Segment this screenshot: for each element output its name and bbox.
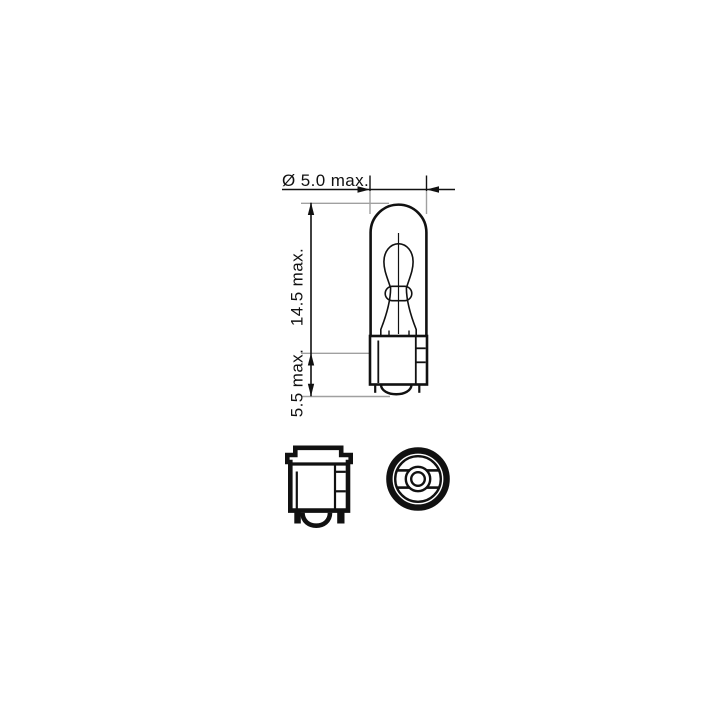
base-length-arrow-bottom xyxy=(308,384,314,397)
top-view-inner-circle xyxy=(395,456,441,502)
length-dimensions xyxy=(301,203,390,397)
diameter-arrow-right xyxy=(427,186,440,192)
top-view-nub-circle xyxy=(411,472,425,486)
base-side-contact-tab-right xyxy=(337,513,344,524)
diameter-dimension-label: Ø 5.0 max. xyxy=(282,172,369,189)
base-side-contact-tab-left xyxy=(294,513,301,524)
base-side-view xyxy=(287,448,350,526)
bulb-dimension-diagram xyxy=(0,0,720,720)
top-view-pinch-outline xyxy=(406,467,430,491)
base-length-arrow-top xyxy=(308,353,314,366)
base-top-view xyxy=(389,450,446,507)
technical-drawing-canvas: Ø 5.0 max. 14.5 max. 5.5 max. xyxy=(0,0,720,720)
glass-nub xyxy=(381,385,412,395)
bulb-side-view xyxy=(370,205,427,395)
base-length-dimension-label: 5.5 max. xyxy=(289,349,306,417)
base-side-glass-nub xyxy=(303,513,331,526)
length-arrow-top xyxy=(308,203,314,216)
overall-length-dimension-label: 14.5 max. xyxy=(289,248,306,326)
top-view-outer-ring xyxy=(389,450,446,507)
